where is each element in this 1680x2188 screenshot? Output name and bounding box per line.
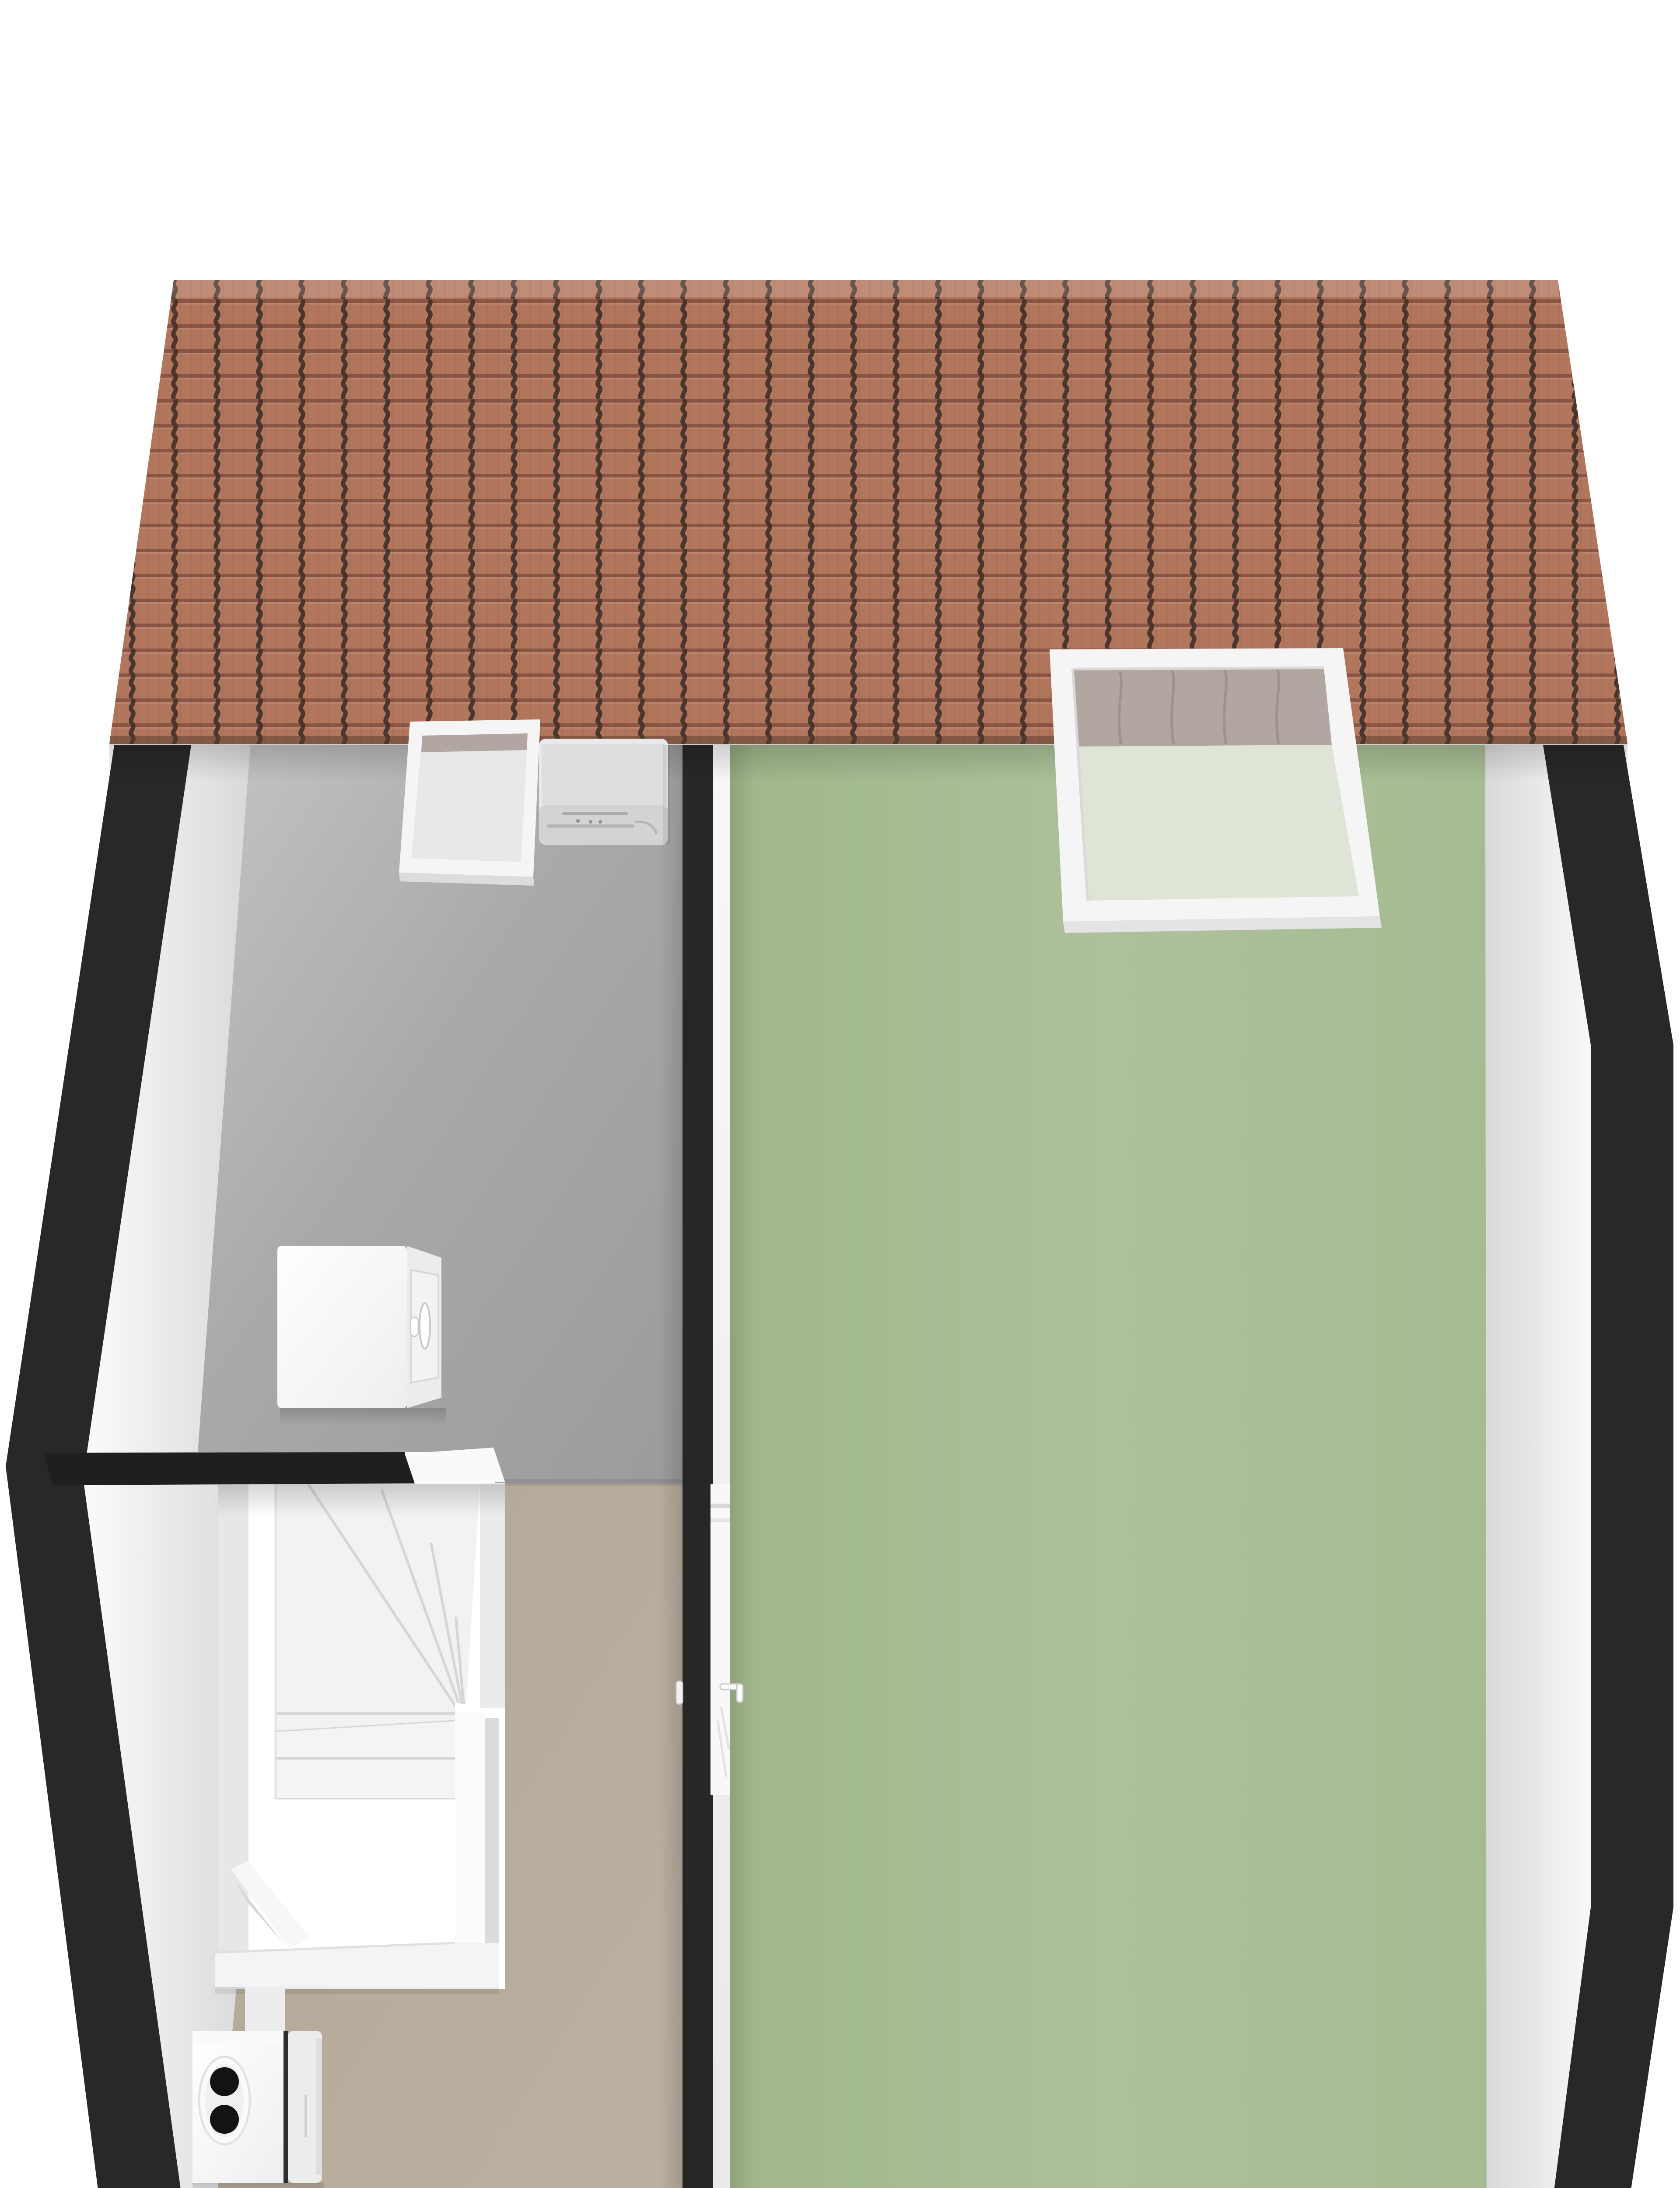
heater-handle-knob <box>410 1317 418 1336</box>
top-roof-ridge-highlight <box>172 280 1559 298</box>
roof-window <box>1050 648 1382 933</box>
door-frame <box>710 1484 730 1795</box>
boiler-door-shade <box>316 2039 322 2175</box>
heater-shadow <box>280 1408 446 1426</box>
vent-slot-2 <box>547 824 634 828</box>
top-roof-eave-edge <box>109 736 1627 744</box>
divider-wall <box>682 745 713 2188</box>
vent-side-shadow <box>663 745 670 844</box>
door-handle-hall-side <box>676 1681 682 1704</box>
top-roof-tiles <box>109 280 1627 744</box>
boiler-flue-pipe <box>210 2067 239 2096</box>
divider-shadow-left <box>659 745 682 2188</box>
vent-dot-2 <box>589 820 592 824</box>
door-lintel-line-1 <box>710 1504 730 1508</box>
vent-dot-3 <box>598 820 602 824</box>
right-wall-inner-face <box>1485 745 1591 2188</box>
stair-straight-treads <box>276 1721 465 1799</box>
boiler-top-face <box>192 2031 285 2046</box>
balustrade-front <box>455 1713 485 1974</box>
boiler-shadow <box>192 2183 324 2188</box>
heater-front <box>277 1246 407 1408</box>
divider-shadow-on-green <box>730 745 756 2188</box>
boiler-seam <box>283 2031 288 2183</box>
balustrade-side <box>485 1718 499 1974</box>
eave-shadow-on-floors <box>109 744 1627 781</box>
floorplan-canvas <box>0 0 1680 2188</box>
boiler-air-pipe <box>210 2105 239 2134</box>
attic-window <box>399 719 540 886</box>
roof-window-glazing-lower <box>1078 745 1359 901</box>
heater-panel-handle <box>420 1303 430 1349</box>
door-lintel-line-2 <box>710 1518 730 1522</box>
ventilation-unit <box>539 739 670 845</box>
top-roof-slope <box>109 280 1627 744</box>
partition-wall <box>44 1452 415 1485</box>
stair-left-wall <box>218 1483 248 1989</box>
green-room-floor <box>730 745 1487 2188</box>
stair-balustrade <box>455 1702 499 1974</box>
floorplan-3d-render <box>0 0 1680 2188</box>
divider-wall-white-trim <box>713 745 730 2188</box>
gray-beige-boundary-shadow <box>495 1479 682 1486</box>
attic-window-glazing <box>411 733 528 862</box>
partition-shadow <box>218 1484 505 1517</box>
attic-window-glazing-over-roof <box>421 733 528 752</box>
water-heater-unit <box>277 1246 446 1426</box>
boiler-door-label <box>304 2095 307 2137</box>
boiler-wall-pillar <box>245 1987 285 2032</box>
vent-front-panel <box>542 744 665 805</box>
vent-slot-1 <box>562 812 628 815</box>
vent-dot-1 <box>576 819 580 823</box>
partition-wall-cap <box>405 1448 505 1483</box>
roof-window-glazing-upper <box>1073 668 1332 747</box>
